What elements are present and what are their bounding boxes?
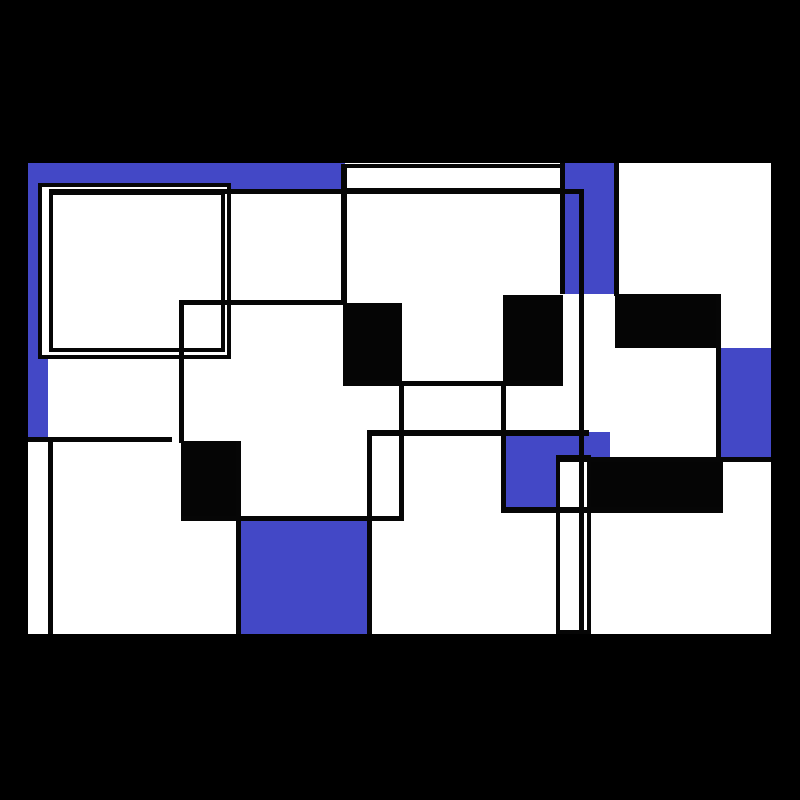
black-bar-right-top [615,294,716,348]
line-v-strip-right [560,163,565,294]
line-v-top-left-col [341,164,347,305]
blue-mid-band [560,163,617,294]
white-top-strip [343,164,564,192]
line-h-right [556,457,771,462]
line-h-under-squares [343,381,563,386]
line-v-center-long [367,430,372,634]
black-bar-right-bottom [589,459,723,513]
line-v-center-right [501,383,506,513]
blue-right-band [720,348,771,459]
white-tall-rect [556,455,591,634]
line-v-tall [579,189,584,634]
inner-frame-outline [49,191,225,352]
line-v-band-right [614,163,619,296]
line-v-center [399,383,404,521]
black-square-left [181,441,238,517]
line-v-left-edge [48,437,53,634]
blue-bottom-square [238,517,371,634]
line-h-upper [49,189,581,194]
black-square-center-left [343,303,402,385]
line-h-lower-right [504,507,723,513]
black-square-center [503,295,563,384]
line-h-mid-left [179,300,345,305]
line-v-far-right [716,294,721,459]
line-v-left [179,300,184,443]
abstract-composition [0,0,800,800]
line-v-bottom-left [236,441,241,634]
